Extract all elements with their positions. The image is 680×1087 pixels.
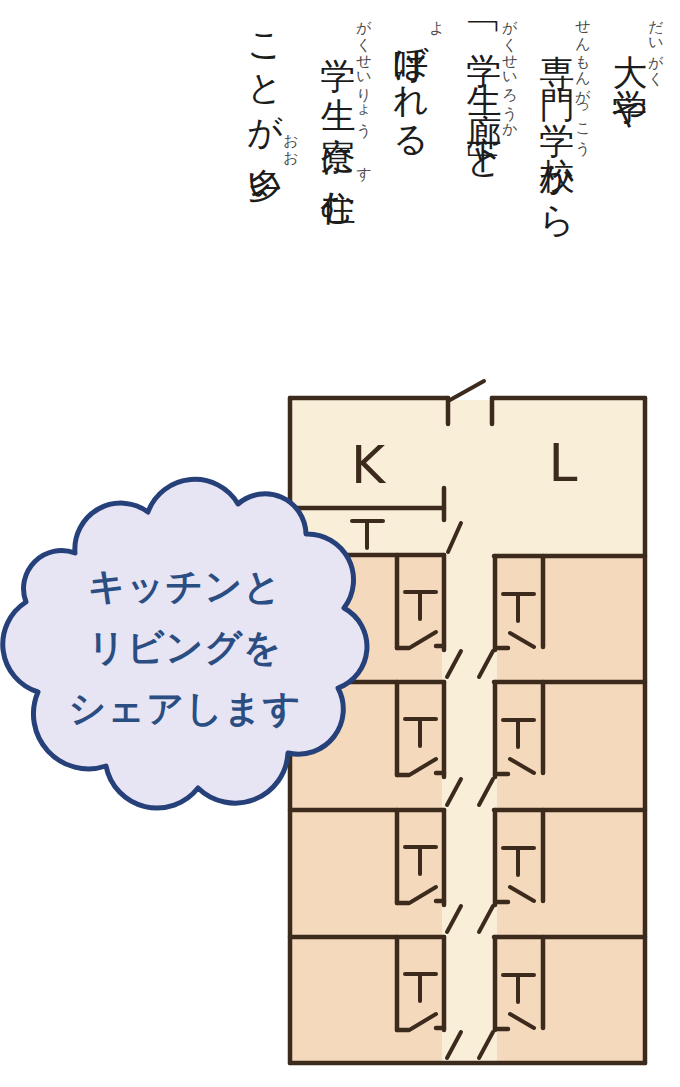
bubble-line: リビングを (30, 617, 340, 678)
speech-bubble-text: キッチンと リビングを シェアします (30, 556, 340, 739)
bubble-line: シェアします (30, 678, 340, 739)
floor-plan-diagram: KL (0, 0, 680, 1087)
comic-panel: 大学だいがくや専門学校せんもんがっこうから「学生廊下がくせいろうか」と呼よばれる… (0, 0, 680, 1087)
kitchen-label: K (351, 435, 387, 495)
bubble-line: キッチンと (30, 556, 340, 617)
living-label: L (549, 433, 578, 493)
door-leaf (450, 381, 484, 400)
